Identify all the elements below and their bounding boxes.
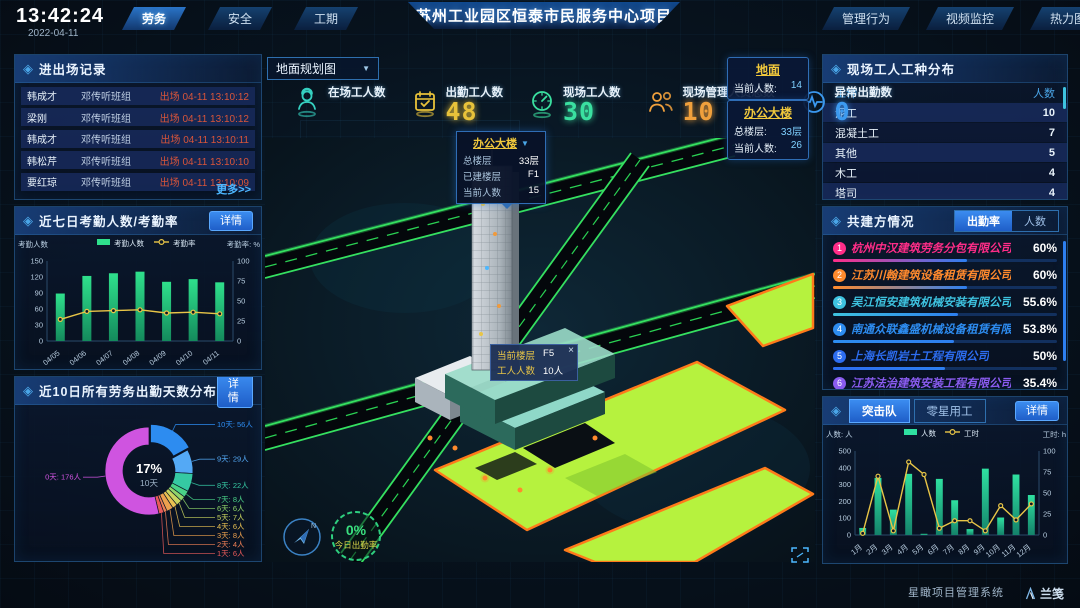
svg-text:3月: 3月: [880, 542, 895, 556]
stat-text: 在场工人数: [328, 84, 386, 100]
svg-text:400: 400: [838, 463, 851, 472]
worker-type-row: 木工4: [823, 163, 1067, 182]
building-popup: 办公大楼 ▼ 总楼层33层已建楼层F1当前人数15: [456, 131, 546, 204]
tooltip-row-value: F5: [543, 348, 554, 362]
attendance-bar-line-chart: 考勤人数考勤率: %考勤人数考勤率03060901201500255075100…: [15, 235, 261, 370]
logo-icon: [1024, 587, 1037, 600]
stat-value: 48: [446, 100, 504, 124]
svg-text:1月: 1月: [849, 542, 864, 556]
stat-value: 30: [563, 100, 621, 124]
nav-tab[interactable]: 管理行为: [822, 7, 910, 30]
calendar-check-icon: [410, 87, 440, 126]
stat-value: 0: [835, 100, 893, 124]
rank-badge: 1: [833, 242, 846, 255]
partner-row: 3吴江恒安建筑机械安装有限公司55.6%: [833, 294, 1057, 316]
svg-text:25: 25: [237, 317, 245, 326]
svg-text:2天: 4人: 2天: 4人: [217, 540, 245, 549]
partner-line: 5上海长凯岩土工程有限公司50%: [833, 348, 1057, 364]
svg-text:9月: 9月: [972, 542, 987, 556]
worker-count: 4: [1049, 167, 1055, 179]
panel-title: 近七日考勤人数/考勤率: [39, 211, 178, 230]
diamond-icon: ◈: [23, 213, 33, 229]
partner-bar-fill: [833, 367, 945, 370]
rank-badge: 5: [833, 350, 846, 363]
svg-text:0天: 176人: 0天: 176人: [45, 473, 81, 482]
record-group: 邓传听班组: [81, 174, 160, 189]
badge-row-value: 14: [791, 80, 802, 95]
svg-text:150: 150: [30, 257, 43, 266]
svg-text:04/11: 04/11: [201, 348, 221, 366]
record-row: 梁刚邓传听班组出场 04-11 13:10:12: [21, 108, 255, 126]
svg-text:200: 200: [838, 497, 851, 506]
record-status: 出场 04-11 13:10:12: [160, 88, 249, 103]
brand-logo: 兰笺: [1024, 585, 1064, 602]
panel-header: ◈ 突击队零星用工 详情: [823, 397, 1067, 425]
partner-value: 60%: [1033, 241, 1057, 255]
svg-text:4天: 6人: 4天: 6人: [217, 522, 245, 531]
panel-title: 进出场记录: [39, 59, 107, 78]
stat-text: 异常出勤数0: [835, 84, 893, 124]
svg-text:100: 100: [237, 257, 250, 266]
attendance-days-donut-chart: 10天: 56人9天: 29人8天: 22人7天: 8人6天: 6人5天: 7人…: [15, 405, 261, 562]
svg-text:120: 120: [30, 273, 43, 282]
svg-text:8天: 22人: 8天: 22人: [217, 481, 249, 490]
panel-title: 近10日所有劳务出勤天数分布: [39, 381, 217, 400]
svg-text:5月: 5月: [910, 542, 925, 556]
diamond-icon: ◈: [23, 61, 33, 77]
partner-name: 杭州中汉建筑劳务分包有限公司: [851, 240, 1011, 256]
record-name: 梁刚: [27, 110, 81, 125]
svg-text:04/09: 04/09: [147, 348, 167, 367]
svg-text:6月: 6月: [926, 542, 941, 556]
diamond-icon: ◈: [831, 403, 841, 419]
partner-bar: [833, 259, 1057, 262]
panel-partners: ◈ 共建方情况 出勤率人数 1杭州中汉建筑劳务分包有限公司60%2江苏川翰建筑设…: [822, 206, 1068, 390]
tooltip-row-value: 10人: [543, 363, 563, 377]
svg-text:5天: 7人: 5天: 7人: [217, 513, 245, 522]
dashboard-root: 13:42:24 2022-04-11 劳务安全工期 苏州工业园区恒泰市民服务中…: [0, 0, 1080, 608]
svg-text:人数: 人数: [921, 428, 936, 438]
svg-text:50: 50: [1043, 489, 1051, 498]
badge-title[interactable]: 办公大楼: [734, 104, 802, 121]
badge-row-value: 33层: [781, 123, 802, 138]
svg-text:30: 30: [35, 321, 43, 330]
clock-date: 2022-04-11: [16, 28, 104, 39]
partner-line: 1杭州中汉建筑劳务分包有限公司60%: [833, 240, 1057, 256]
tooltip-row-label: 当前楼层: [497, 348, 535, 362]
record-name: 韩成才: [27, 88, 81, 103]
svg-text:考勤率: %: 考勤率: %: [227, 239, 261, 249]
panel-entry-exit-records: ◈ 进出场记录 韩成才邓传听班组出场 04-11 13:10:12梁刚邓传听班组…: [14, 54, 262, 200]
clock-time: 13:42:24: [16, 5, 104, 28]
svg-text:10月: 10月: [984, 542, 1002, 559]
stat-item: 在场工人数: [292, 84, 386, 126]
panel-attendance-days-donut: ◈ 近10日所有劳务出勤天数分布 详情 10天: 56人9天: 29人8天: 2…: [14, 376, 262, 562]
record-status: 出场 04-11 13:10:12: [160, 110, 249, 125]
record-name: 要红琼: [27, 174, 81, 189]
partners-tab[interactable]: 出勤率: [955, 211, 1012, 231]
panel-header: ◈ 共建方情况 出勤率人数: [823, 207, 1067, 235]
svg-text:7天: 8人: 7天: 8人: [217, 495, 245, 504]
gauge-value: 0%: [329, 522, 383, 538]
record-group: 邓传听班组: [81, 110, 160, 125]
worker-type: 塔司: [835, 185, 857, 201]
record-group: 邓传听班组: [81, 153, 160, 168]
nav-tab[interactable]: 安全: [208, 7, 272, 30]
rank-badge: 6: [833, 377, 846, 390]
partner-row: 2江苏川翰建筑设备租赁有限公司60%: [833, 267, 1057, 289]
partners-tab[interactable]: 人数: [1012, 211, 1058, 231]
rank-badge: 4: [833, 323, 846, 336]
record-name: 韩松芹: [27, 153, 81, 168]
svg-text:04/06: 04/06: [68, 348, 88, 367]
partner-name: 江苏川翰建筑设备租赁有限公司: [851, 267, 1011, 283]
rank-badge: 2: [833, 269, 846, 282]
floor-tooltip-rows: 当前楼层F5工人人数10人: [497, 348, 571, 377]
close-icon[interactable]: ×: [568, 345, 574, 356]
svg-text:12月: 12月: [1015, 542, 1033, 559]
svg-text:工时: h: 工时: h: [1043, 429, 1066, 439]
worker-type-row: 其他5: [823, 143, 1067, 162]
partner-value: 35.4%: [1023, 376, 1057, 390]
partner-value: 50%: [1033, 349, 1057, 363]
svg-text:50: 50: [237, 297, 245, 306]
partner-row: 4南通众联鑫盛机械设备租赁有限公司53.8%: [833, 321, 1057, 343]
record-group: 邓传听班组: [81, 131, 160, 146]
partner-row: 1杭州中汉建筑劳务分包有限公司60%: [833, 240, 1057, 262]
record-row: 韩成才邓传听班组出场 04-11 13:10:11: [21, 130, 255, 148]
badge-row: 当前人数:26: [734, 140, 802, 155]
stat-item: 现场工人数30: [527, 84, 621, 126]
partner-value: 60%: [1033, 268, 1057, 282]
record-status: 出场 04-11 13:10:11: [160, 131, 249, 146]
partner-name: 吴江恒安建筑机械安装有限公司: [851, 294, 1011, 310]
header-tabs-left: 劳务安全工期: [122, 7, 358, 30]
tooltip-row: 当前楼层F5: [497, 348, 571, 362]
svg-text:6天: 6人: 6天: 6人: [217, 504, 245, 513]
building-popup-row: 总楼层33层: [463, 153, 539, 167]
diamond-icon: ◈: [23, 383, 33, 399]
popup-row-value: F1: [528, 169, 539, 183]
chevron-down-icon[interactable]: ▼: [521, 139, 529, 148]
svg-text:75: 75: [1043, 468, 1051, 477]
record-group: 邓传听班组: [81, 88, 160, 103]
partner-bar-fill: [833, 340, 954, 343]
partner-row: 5上海长凯岩土工程有限公司50%: [833, 348, 1057, 370]
svg-text:90: 90: [35, 289, 43, 298]
svg-text:75: 75: [237, 277, 245, 286]
worker-type-row: 塔司4: [823, 183, 1067, 200]
partner-bar-fill: [833, 313, 958, 316]
building-popup-title[interactable]: 办公大楼: [473, 135, 517, 151]
nav-tab[interactable]: 劳务: [122, 7, 186, 30]
svg-text:04/08: 04/08: [121, 348, 141, 367]
partner-name: 南通众联鑫盛机械设备租赁有限公司: [851, 321, 1011, 337]
svg-text:考勤人数: 考勤人数: [18, 239, 48, 249]
svg-text:8月: 8月: [956, 542, 971, 556]
svg-text:0: 0: [1043, 531, 1047, 540]
floor-badge: 地面当前人数:14: [727, 57, 809, 100]
worker-count: 10: [1043, 107, 1055, 119]
logo-text: 兰笺: [1040, 585, 1064, 602]
badge-title[interactable]: 地面: [734, 61, 802, 78]
panel-team-chart: ◈ 突击队零星用工 详情 人数: 人工时: h人数工时0100200300400…: [822, 396, 1068, 564]
tooltip-row-label: 工人人数: [497, 363, 535, 377]
svg-text:500: 500: [838, 447, 851, 456]
fullscreen-expand-icon[interactable]: [791, 547, 809, 568]
partner-bar-fill: [833, 286, 967, 289]
svg-text:10天: 56人: 10天: 56人: [217, 420, 253, 429]
page-title: 苏州工业园区恒泰市民服务中心项目: [408, 2, 680, 29]
diamond-icon: ◈: [831, 213, 841, 229]
floor-badge: 办公大楼总楼层:33层当前人数:26: [727, 100, 809, 160]
svg-text:100: 100: [1043, 447, 1056, 456]
svg-text:2月: 2月: [864, 542, 879, 556]
partner-bar-fill: [833, 259, 967, 262]
building-popup-rows: 总楼层33层已建楼层F1当前人数15: [463, 153, 539, 199]
diamond-icon: ◈: [831, 61, 841, 77]
today-attendance-gauge: 0% 今日出勤率: [329, 509, 383, 563]
svg-text:考勤人数: 考勤人数: [114, 238, 144, 248]
detail-button[interactable]: 详情: [209, 211, 253, 231]
badge-row-value: 26: [791, 140, 802, 155]
popup-row-value: 33层: [519, 153, 539, 167]
svg-text:工时: 工时: [964, 428, 979, 438]
record-row: 韩松芹邓传听班组出场 04-11 13:10:10: [21, 151, 255, 169]
partner-bar: [833, 313, 1057, 316]
detail-button[interactable]: 详情: [1015, 401, 1059, 421]
svg-text:11月: 11月: [1000, 542, 1018, 559]
partner-line: 4南通众联鑫盛机械设备租赁有限公司53.8%: [833, 321, 1057, 337]
building-popup-row: 已建楼层F1: [463, 169, 539, 183]
badge-row-label: 当前人数:: [734, 80, 777, 95]
nav-tab[interactable]: 热力图: [1030, 7, 1080, 30]
partner-line: 2江苏川翰建筑设备租赁有限公司60%: [833, 267, 1057, 283]
partner-bar: [833, 367, 1057, 370]
panel-header: ◈ 近七日考勤人数/考勤率 详情: [15, 207, 261, 235]
worker-type: 木工: [835, 165, 857, 181]
partner-bar: [833, 286, 1057, 289]
record-status: 出场 04-11 13:10:10: [160, 153, 249, 168]
team-bar-line-chart: 人数: 人工时: h人数工时01002003004005000255075100…: [823, 425, 1067, 564]
partner-name: 江苏法治建筑安装工程有限公司: [851, 375, 1011, 390]
worker-type: 其他: [835, 145, 857, 161]
partner-value: 55.6%: [1023, 295, 1057, 309]
svg-text:1天: 6人: 1天: 6人: [217, 549, 245, 558]
worker-count: 5: [1049, 147, 1055, 159]
badge-row: 当前人数:14: [734, 80, 802, 95]
building-popup-row: 当前人数15: [463, 185, 539, 199]
detail-button[interactable]: 详情: [217, 376, 253, 408]
stat-label: 在场工人数: [328, 84, 386, 100]
clock: 13:42:24 2022-04-11: [16, 5, 104, 39]
map-layer-select[interactable]: 地面规划图 ▼: [267, 57, 379, 80]
worker-count: 7: [1049, 127, 1055, 139]
stat-item: 出勤工人数48: [410, 84, 504, 126]
panel-worker-types: ◈ 现场工人工种分布 工种人数 泥工10混凝土工7其他5木工4塔司4: [822, 54, 1068, 200]
team-tabs: 突击队零星用工: [849, 399, 986, 423]
scrollbar[interactable]: [1063, 241, 1066, 361]
map-layer-value: 地面规划图: [276, 60, 336, 77]
worker-count: 4: [1049, 187, 1055, 199]
people-icon: [645, 87, 677, 126]
svg-text:4月: 4月: [895, 542, 910, 556]
popup-row-label: 当前人数: [463, 185, 501, 199]
svg-text:60: 60: [35, 305, 43, 314]
svg-text:7月: 7月: [941, 542, 956, 556]
svg-text:0: 0: [847, 531, 851, 540]
stat-item: 异常出勤数0: [799, 84, 893, 126]
worker-type: 混凝土工: [835, 125, 879, 141]
panel-title: 现场工人工种分布: [847, 59, 955, 78]
stat-text: 出勤工人数48: [446, 84, 504, 124]
stat-text: 现场工人数30: [563, 84, 621, 124]
partner-line: 3吴江恒安建筑机械安装有限公司55.6%: [833, 294, 1057, 310]
nav-tab[interactable]: 视频监控: [926, 7, 1014, 30]
popup-row-label: 总楼层: [463, 153, 492, 167]
panel-header: ◈ 进出场记录: [15, 55, 261, 83]
chevron-down-icon: ▼: [362, 64, 370, 73]
svg-text:9天: 29人: 9天: 29人: [217, 455, 249, 464]
panel-header: ◈ 近10日所有劳务出勤天数分布 详情: [15, 377, 261, 405]
system-name: 星瞰项目管理系统: [908, 584, 1004, 600]
compass-icon[interactable]: N: [282, 517, 322, 562]
svg-text:3天: 8人: 3天: 8人: [217, 531, 245, 540]
svg-text:04/07: 04/07: [94, 348, 114, 367]
gauge-icon: [527, 87, 557, 126]
badge-row-label: 总楼层:: [734, 123, 767, 138]
svg-text:考勤率: 考勤率: [173, 238, 196, 248]
panel-header: ◈ 现场工人工种分布: [823, 55, 1067, 83]
svg-text:25: 25: [1043, 510, 1051, 519]
types-column-label: 人数: [1033, 85, 1055, 101]
record-name: 韩成才: [27, 131, 81, 146]
rank-badge: 3: [833, 296, 846, 309]
partner-line: 6江苏法治建筑安装工程有限公司35.4%: [833, 375, 1057, 390]
panel-title: 共建方情况: [847, 211, 915, 230]
partner-name: 上海长凯岩土工程有限公司: [851, 348, 989, 364]
svg-text:17%: 17%: [136, 461, 162, 476]
team-tab[interactable]: 突击队: [849, 399, 910, 423]
records-list: 韩成才邓传听班组出场 04-11 13:10:12梁刚邓传听班组出场 04-11…: [15, 87, 261, 191]
partner-value: 53.8%: [1023, 322, 1057, 336]
worker-icon: [292, 87, 322, 126]
partners-tabs: 出勤率人数: [954, 210, 1059, 232]
header-tabs-right: 管理行为视频监控热力图: [822, 7, 1080, 30]
more-link[interactable]: 更多>>: [216, 181, 251, 197]
svg-text:0: 0: [39, 337, 43, 346]
panel-attendance-chart: ◈ 近七日考勤人数/考勤率 详情 考勤人数考勤率: %考勤人数考勤率030609…: [14, 206, 262, 370]
svg-text:04/10: 04/10: [174, 348, 194, 367]
partner-row: 6江苏法治建筑安装工程有限公司35.4%: [833, 375, 1057, 390]
scrollbar[interactable]: [1063, 87, 1066, 109]
svg-text:100: 100: [838, 514, 851, 523]
team-tab[interactable]: 零星用工: [914, 399, 986, 423]
popup-row-label: 已建楼层: [463, 169, 501, 183]
svg-text:04/05: 04/05: [41, 348, 61, 367]
tooltip-row: 工人人数10人: [497, 363, 571, 377]
popup-row-value: 15: [528, 185, 539, 199]
svg-text:N: N: [311, 523, 316, 530]
svg-text:300: 300: [838, 480, 851, 489]
svg-text:10天: 10天: [140, 478, 158, 488]
gauge-label: 今日出勤率: [329, 539, 383, 551]
floor-tooltip: × 当前楼层F5工人人数10人: [490, 344, 578, 381]
badge-row-label: 当前人数:: [734, 140, 777, 155]
svg-text:0: 0: [237, 337, 241, 346]
nav-tab[interactable]: 工期: [294, 7, 358, 30]
record-row: 韩成才邓传听班组出场 04-11 13:10:12: [21, 87, 255, 105]
svg-text:人数: 人: 人数: 人: [826, 429, 853, 439]
badge-row: 总楼层:33层: [734, 123, 802, 138]
partners-list: 1杭州中汉建筑劳务分包有限公司60%2江苏川翰建筑设备租赁有限公司60%3吴江恒…: [823, 240, 1067, 390]
partner-bar: [833, 340, 1057, 343]
